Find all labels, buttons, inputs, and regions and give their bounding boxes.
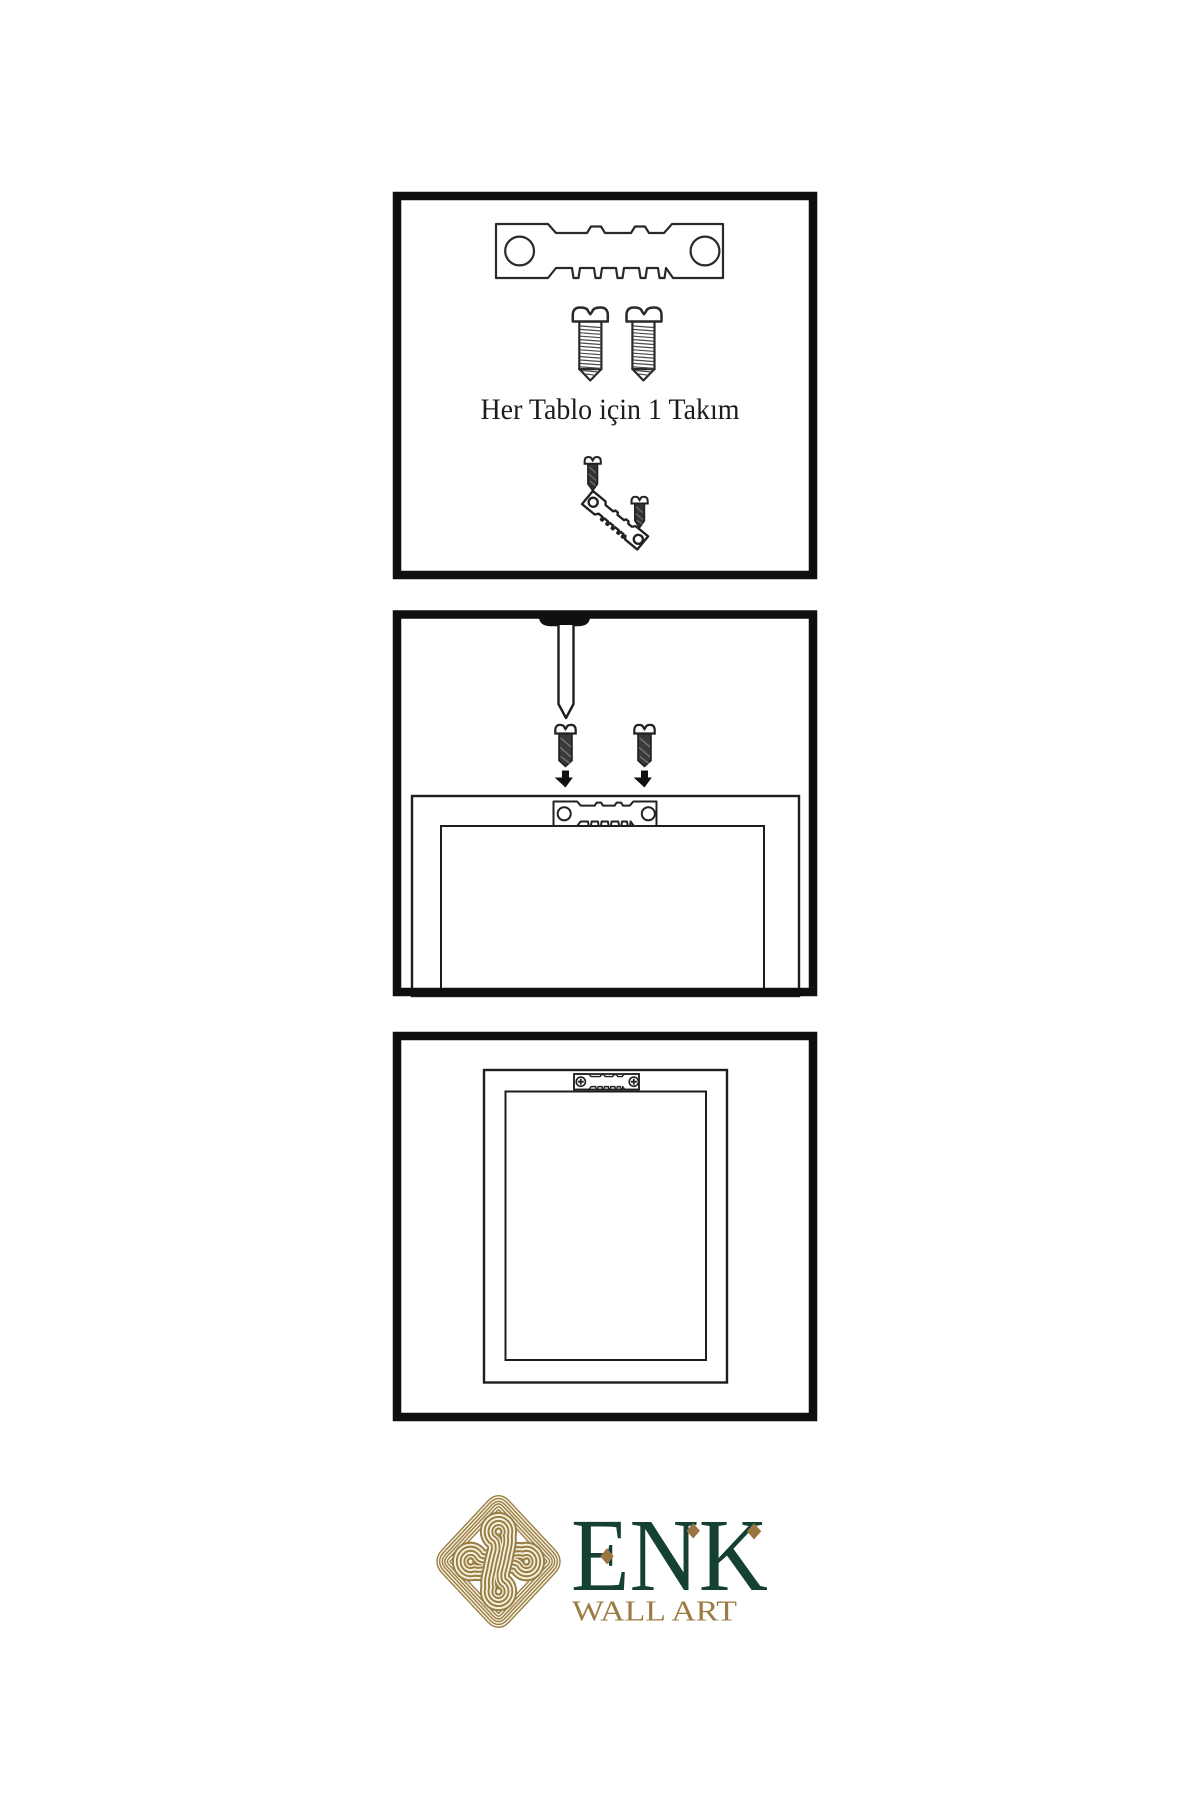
svg-text:Her Tablo için 1 Takım: Her Tablo için 1 Takım — [481, 393, 740, 426]
svg-text:WALL ART: WALL ART — [572, 1596, 737, 1628]
